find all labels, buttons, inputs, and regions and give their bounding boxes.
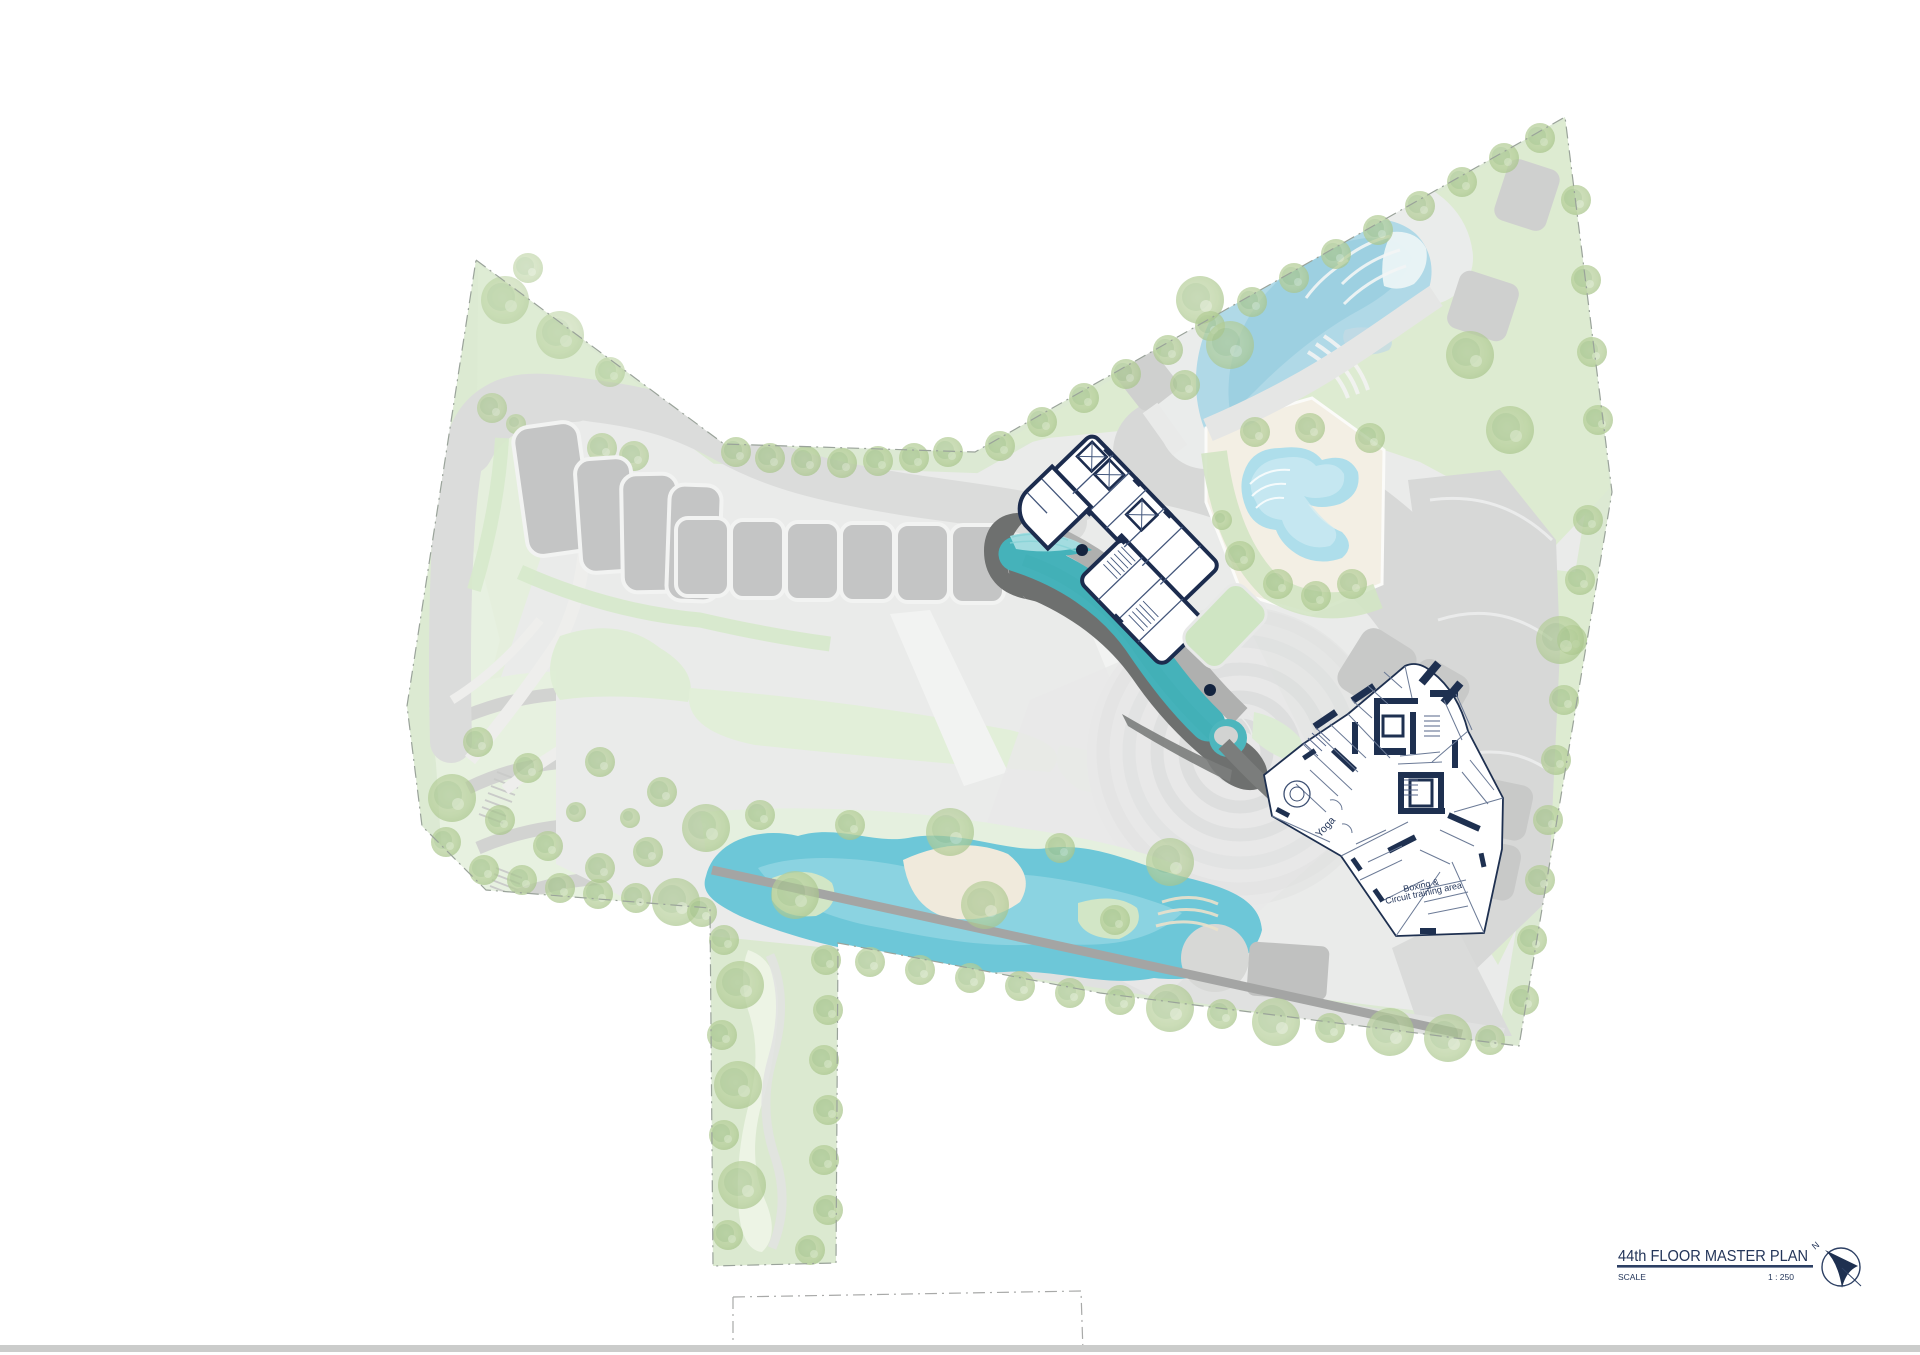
svg-text:1 : 250: 1 : 250: [1768, 1272, 1794, 1282]
svg-text:44th FLOOR MASTER PLAN: 44th FLOOR MASTER PLAN: [1618, 1248, 1808, 1265]
svg-text:SCALE: SCALE: [1618, 1272, 1646, 1282]
